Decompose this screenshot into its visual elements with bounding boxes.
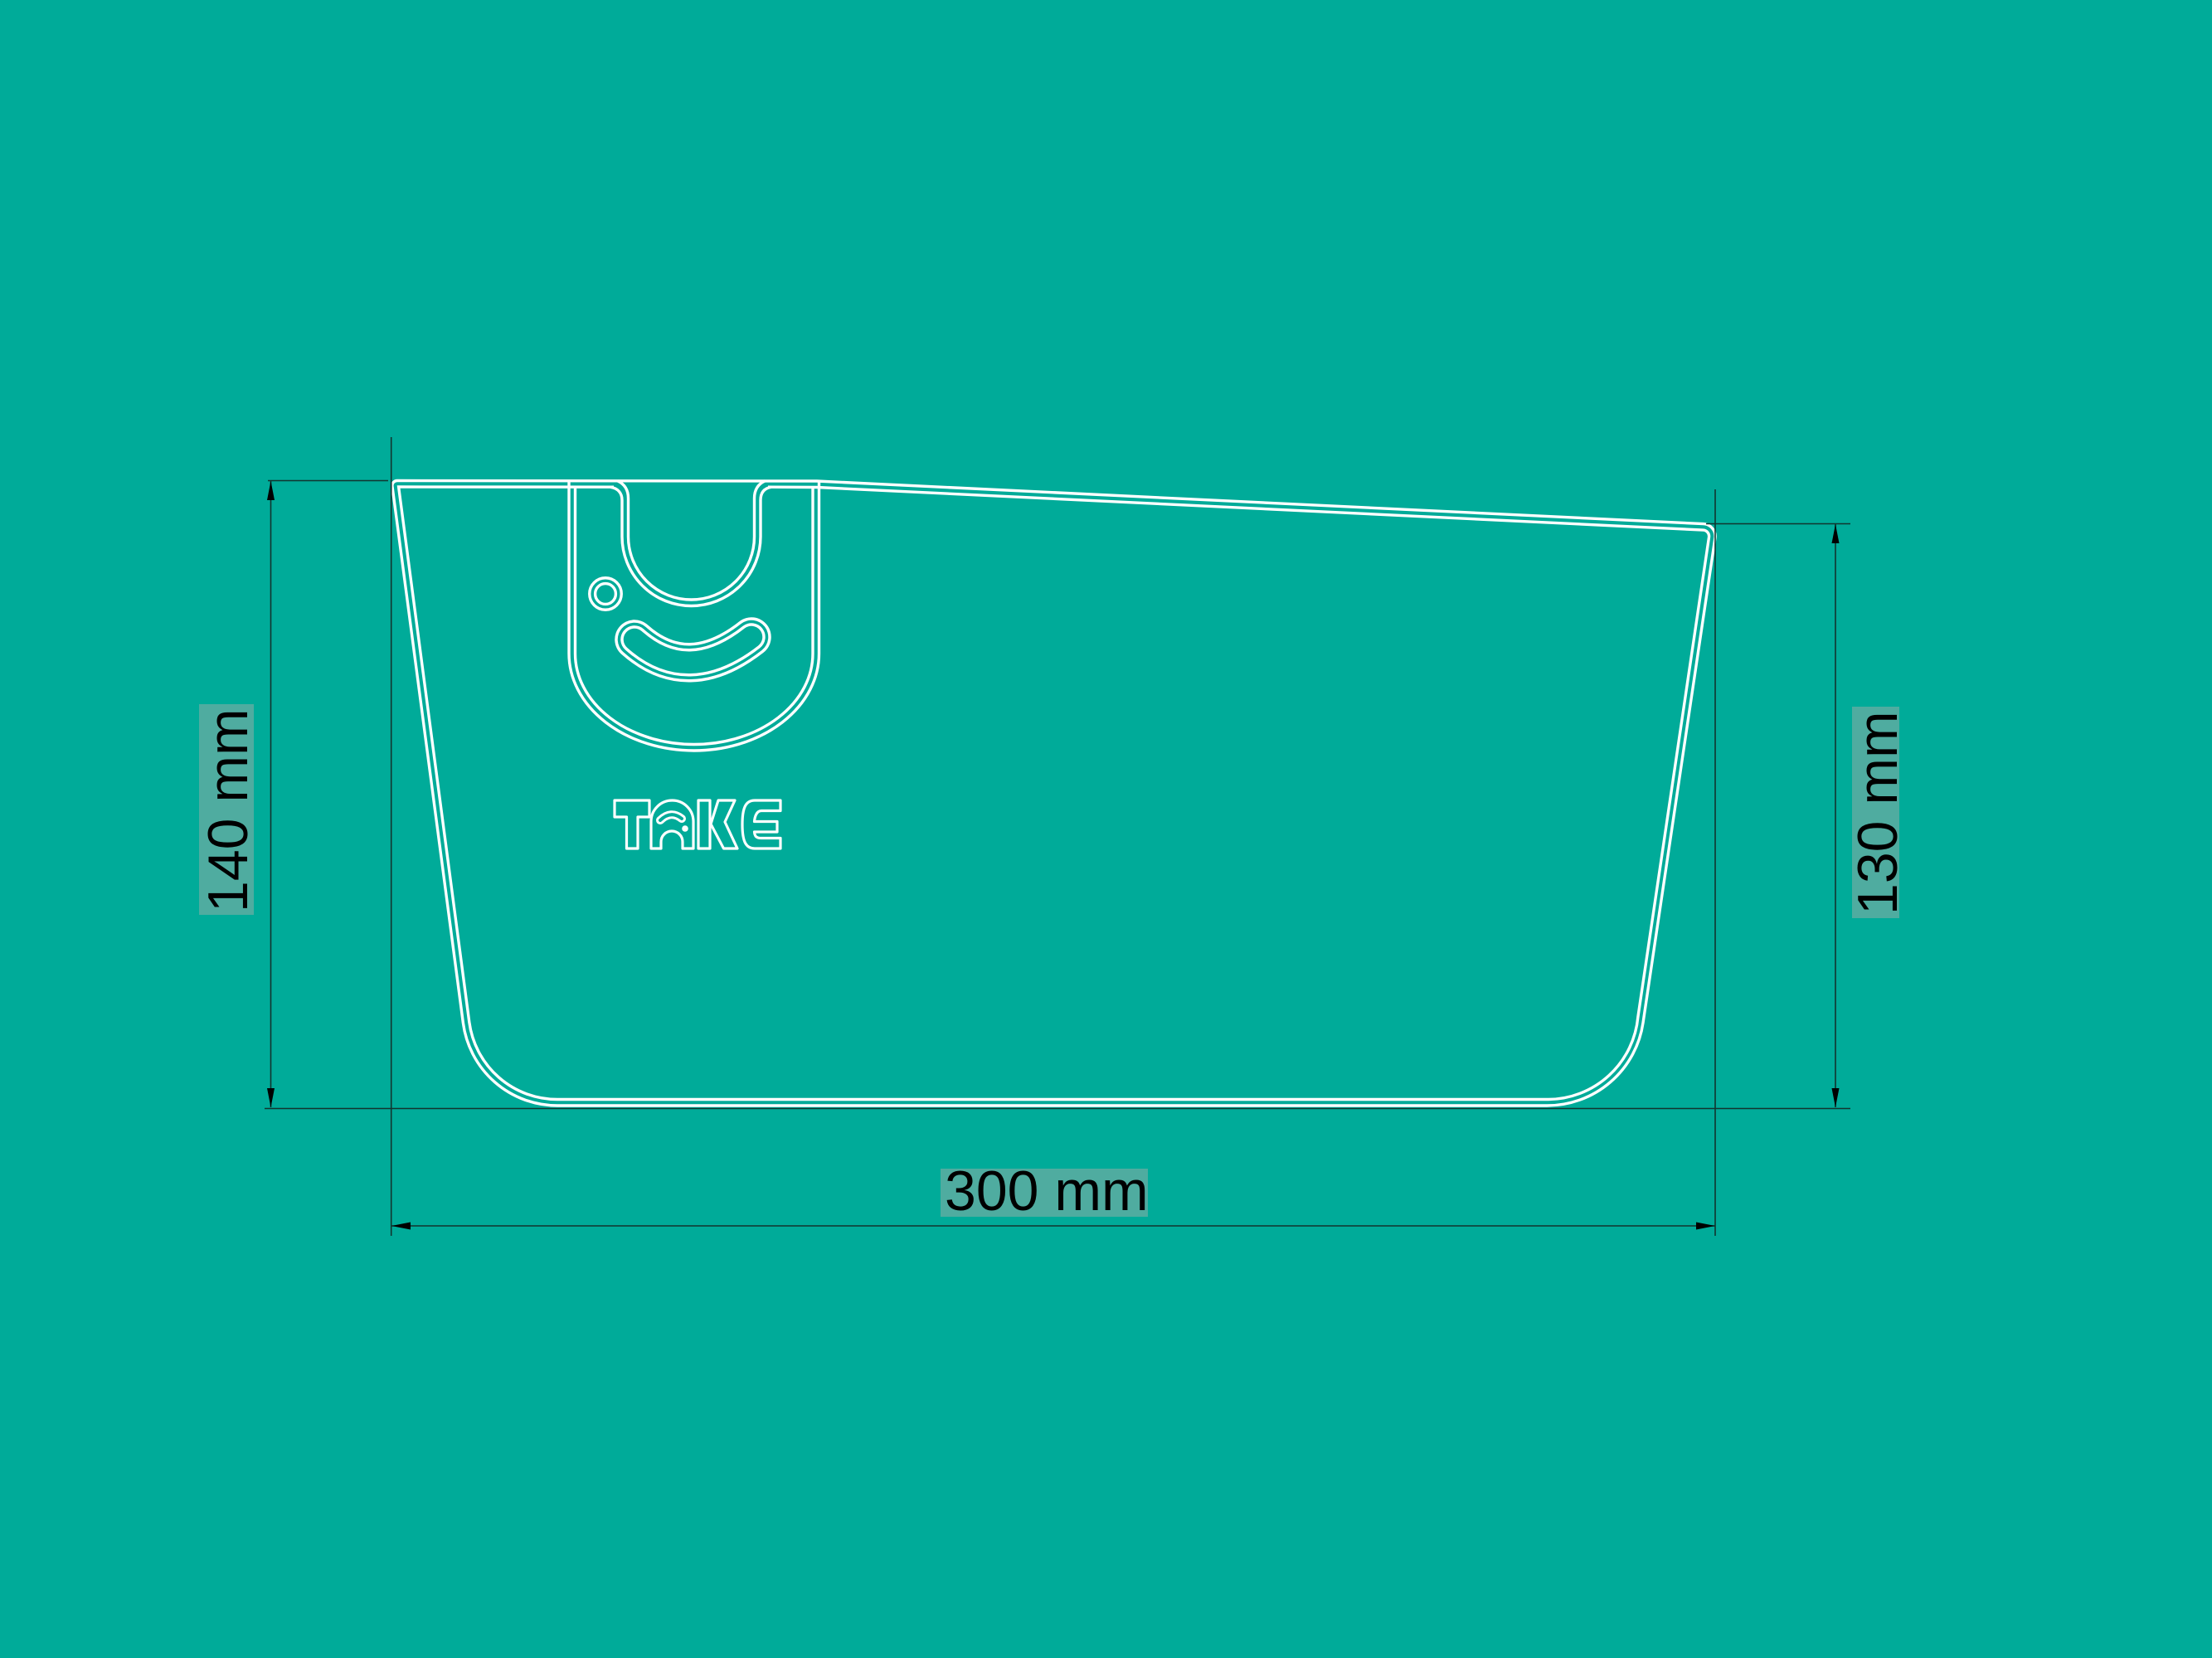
svg-text:300 mm: 300 mm <box>945 1160 1149 1223</box>
svg-text:130 mm: 130 mm <box>1846 711 1909 915</box>
svg-text:140 mm: 140 mm <box>197 708 260 912</box>
